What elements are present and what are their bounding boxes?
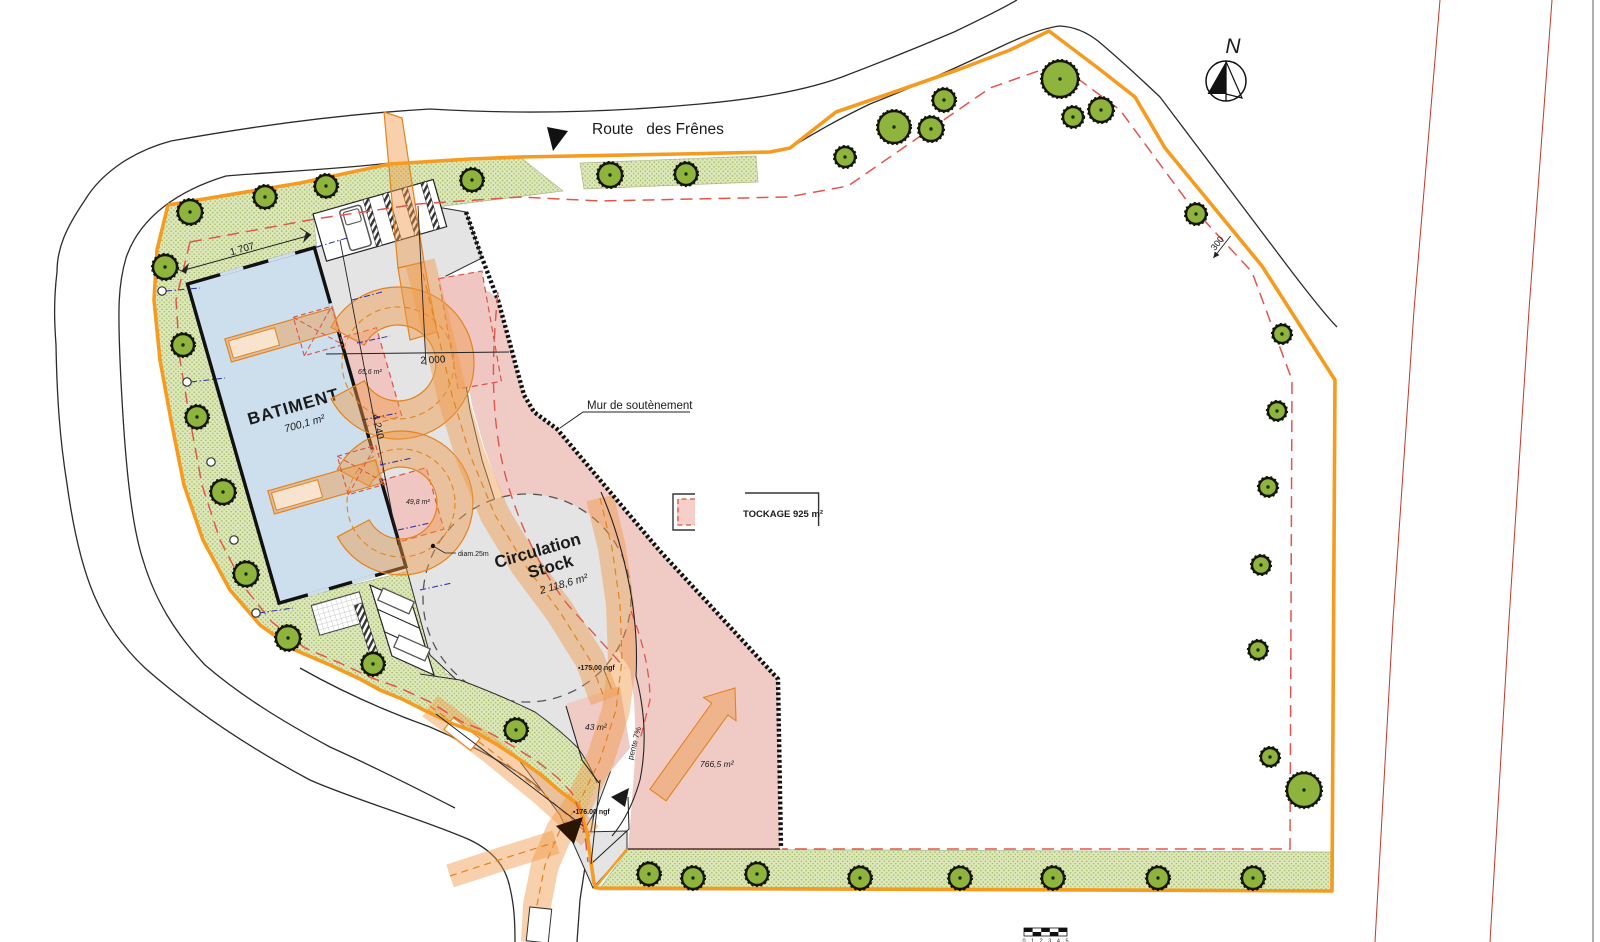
svg-text:65,6 m²: 65,6 m² (358, 369, 382, 376)
svg-text:1: 1 (1031, 939, 1034, 942)
svg-text:▪175.00 ngf: ▪175.00 ngf (578, 665, 615, 672)
svg-text:43 m²: 43 m² (585, 722, 608, 732)
svg-text:3: 3 (1048, 939, 1051, 942)
svg-text:5: 5 (1065, 939, 1068, 942)
svg-text:2 000: 2 000 (420, 354, 446, 366)
svg-text:diam.25m: diam.25m (458, 551, 489, 558)
svg-text:2: 2 (1040, 939, 1043, 942)
svg-text:Route des Frênes: Route des Frênes (592, 121, 724, 138)
svg-text:▪176.00 ngf: ▪176.00 ngf (573, 809, 610, 816)
svg-text:Mur de soutènement: Mur de soutènement (587, 400, 693, 412)
svg-text:N: N (1225, 35, 1241, 58)
svg-text:4: 4 (1057, 939, 1060, 942)
svg-text:TOCKAGE 925 m²: TOCKAGE 925 m² (743, 509, 823, 520)
svg-text:0: 0 (1022, 939, 1025, 942)
svg-text:766,5 m²: 766,5 m² (700, 759, 735, 769)
svg-text:49,8 m²: 49,8 m² (406, 499, 430, 506)
